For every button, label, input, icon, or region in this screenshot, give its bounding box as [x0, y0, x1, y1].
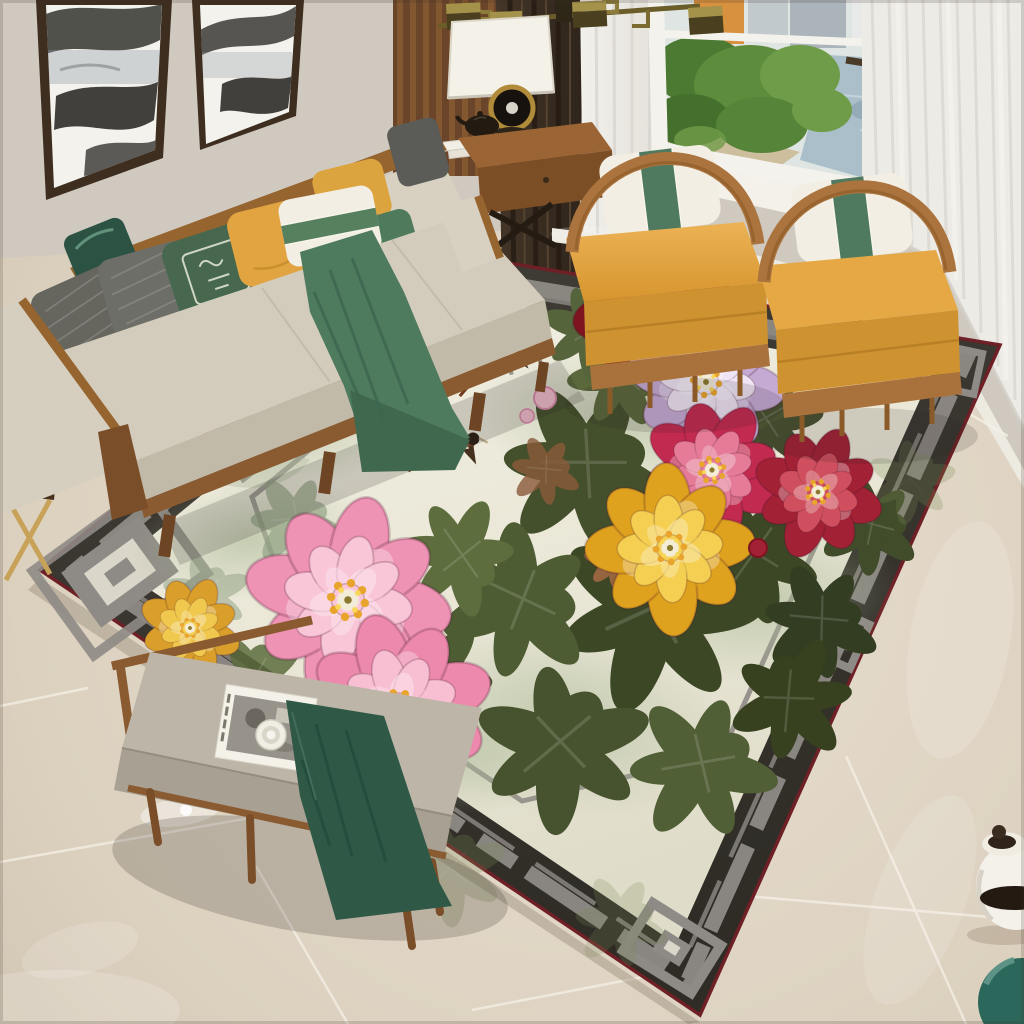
- scene: [0, 0, 1024, 1024]
